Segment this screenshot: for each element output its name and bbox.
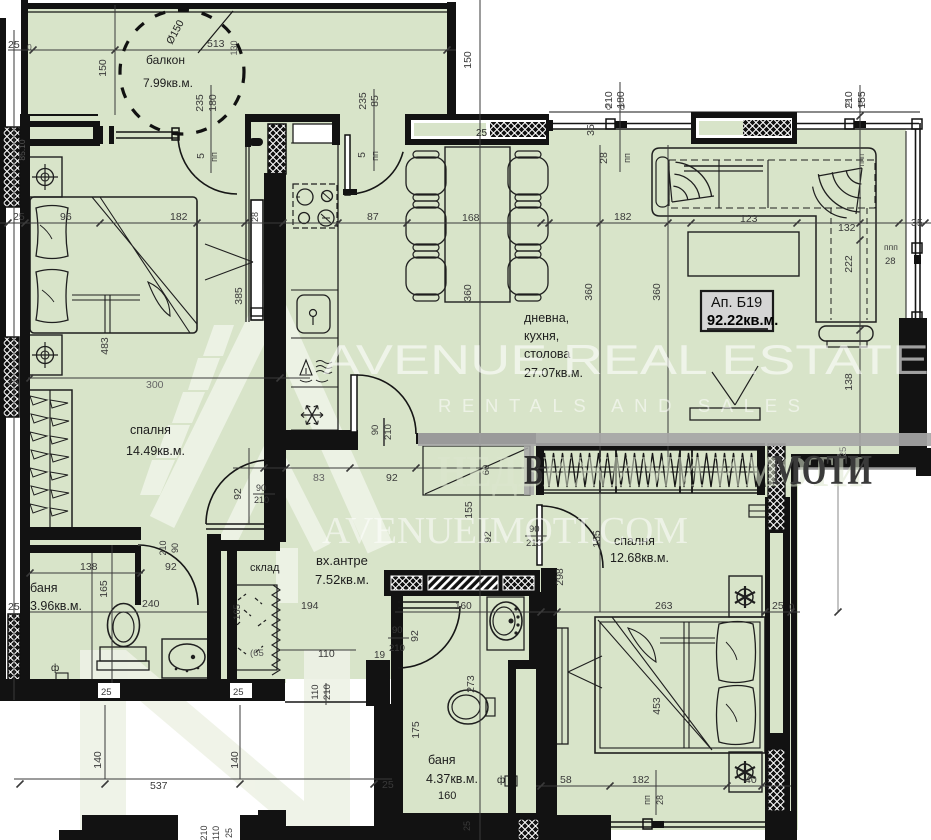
svg-text:123: 123 bbox=[740, 213, 758, 225]
svg-text:МОТИ: МОТИ bbox=[772, 448, 872, 494]
svg-text:25: 25 bbox=[382, 779, 394, 791]
svg-text:19: 19 bbox=[374, 650, 386, 661]
svg-text:92: 92 bbox=[409, 630, 421, 642]
svg-text:25: 25 bbox=[476, 128, 488, 139]
svg-text:385: 385 bbox=[233, 287, 245, 305]
svg-text:90: 90 bbox=[392, 625, 403, 636]
svg-text:AVENUEIMOTI.COM: AVENUEIMOTI.COM bbox=[322, 510, 688, 552]
svg-text:298: 298 bbox=[554, 568, 566, 586]
svg-text:210: 210 bbox=[843, 91, 855, 109]
svg-text:90: 90 bbox=[170, 543, 180, 553]
svg-text:0: 0 bbox=[620, 102, 625, 112]
svg-text:25: 25 bbox=[233, 687, 244, 698]
svg-text:92.22кв.м.: 92.22кв.м. bbox=[707, 313, 778, 329]
svg-text:182: 182 bbox=[632, 774, 650, 786]
svg-text:40: 40 bbox=[745, 774, 757, 786]
svg-text:25: 25 bbox=[8, 601, 20, 613]
svg-text:175: 175 bbox=[410, 721, 422, 739]
svg-text:балкон: балкон bbox=[146, 53, 185, 67]
svg-text:35: 35 bbox=[911, 217, 923, 229]
svg-text:165: 165 bbox=[232, 604, 243, 620]
svg-text:150: 150 bbox=[97, 59, 109, 77]
svg-text:25: 25 bbox=[224, 828, 234, 838]
svg-text:263: 263 bbox=[655, 600, 673, 612]
svg-text:210: 210 bbox=[158, 540, 168, 555]
svg-text:168: 168 bbox=[462, 212, 480, 224]
svg-text:300: 300 bbox=[146, 379, 164, 391]
svg-text:3.96кв.м.: 3.96кв.м. bbox=[30, 599, 82, 613]
svg-text:85.10: 85.10 bbox=[17, 139, 27, 161]
svg-text:25: 25 bbox=[462, 821, 472, 831]
svg-text:360: 360 bbox=[651, 283, 663, 301]
svg-text:AVENUE REAL ESTATE: AVENUE REAL ESTATE bbox=[323, 336, 929, 383]
svg-text:В: В bbox=[524, 448, 543, 494]
svg-text:96: 96 bbox=[60, 211, 72, 223]
svg-text:222: 222 bbox=[843, 255, 855, 273]
svg-text:дневна,: дневна, bbox=[524, 311, 569, 325]
svg-text:165: 165 bbox=[98, 580, 110, 598]
svg-text:235: 235 bbox=[357, 92, 369, 110]
svg-text:ппп: ппп bbox=[884, 242, 898, 252]
svg-text:25: 25 bbox=[13, 211, 25, 223]
svg-text:пп: пп bbox=[642, 795, 652, 805]
svg-text:5: 5 bbox=[195, 153, 207, 159]
svg-text:83: 83 bbox=[313, 472, 325, 484]
svg-text:5: 5 bbox=[356, 152, 368, 158]
svg-text:273: 273 bbox=[465, 675, 477, 693]
svg-text:360: 360 bbox=[462, 284, 474, 302]
svg-text:132: 132 bbox=[838, 222, 856, 234]
svg-text:360: 360 bbox=[583, 283, 595, 301]
svg-text:7.52кв.м.: 7.52кв.м. bbox=[315, 572, 369, 587]
svg-text:92: 92 bbox=[165, 561, 177, 573]
svg-text:ппп: ппп bbox=[857, 154, 866, 166]
svg-text:0: 0 bbox=[606, 102, 611, 112]
svg-text:140: 140 bbox=[229, 751, 241, 769]
svg-text:235: 235 bbox=[194, 94, 206, 112]
svg-text:87: 87 bbox=[367, 211, 379, 223]
svg-text:25: 25 bbox=[101, 687, 112, 698]
svg-text:(65: (65 bbox=[250, 648, 264, 659]
svg-text:180: 180 bbox=[207, 94, 219, 112]
svg-text:7.99кв.м.: 7.99кв.м. bbox=[143, 76, 193, 90]
svg-text:28: 28 bbox=[598, 152, 610, 164]
svg-text:баня: баня bbox=[428, 753, 456, 767]
svg-text:28: 28 bbox=[250, 212, 260, 222]
svg-text:RENTALS AND SALES: RENTALS AND SALES bbox=[438, 395, 800, 416]
svg-text:пп: пп bbox=[370, 151, 380, 161]
svg-text:210: 210 bbox=[389, 643, 405, 654]
svg-text:28: 28 bbox=[885, 256, 896, 267]
svg-text:92: 92 bbox=[386, 472, 398, 484]
svg-text:85: 85 bbox=[369, 95, 381, 107]
svg-text:4.37кв.м.: 4.37кв.м. bbox=[426, 772, 478, 786]
svg-text:210: 210 bbox=[199, 825, 209, 840]
svg-text:537: 537 bbox=[150, 780, 168, 792]
svg-text:25: 25 bbox=[8, 39, 20, 51]
svg-text:182: 182 bbox=[170, 211, 188, 223]
svg-text:110: 110 bbox=[310, 684, 321, 699]
svg-text:35: 35 bbox=[585, 124, 597, 136]
svg-text:25: 25 bbox=[7, 376, 19, 388]
svg-text:ф: ф bbox=[497, 774, 505, 786]
svg-text:138: 138 bbox=[80, 561, 98, 573]
svg-text:155: 155 bbox=[856, 91, 868, 109]
svg-text:0: 0 bbox=[27, 42, 32, 52]
svg-text:210: 210 bbox=[254, 495, 269, 505]
svg-text:90: 90 bbox=[370, 425, 381, 436]
svg-text:склад: склад bbox=[250, 562, 280, 574]
svg-text:0: 0 bbox=[789, 602, 794, 613]
svg-text:14.49кв.м.: 14.49кв.м. bbox=[126, 444, 185, 458]
svg-text:194: 194 bbox=[301, 600, 319, 612]
svg-text:пп: пп bbox=[622, 153, 632, 163]
svg-text:58: 58 bbox=[560, 774, 572, 786]
svg-text:453: 453 bbox=[651, 697, 663, 715]
svg-text:ф: ф bbox=[51, 662, 59, 674]
svg-text:110: 110 bbox=[211, 826, 221, 840]
svg-text:12.68кв.м.: 12.68кв.м. bbox=[610, 551, 669, 565]
svg-text:вх.антре: вх.антре bbox=[316, 553, 368, 568]
svg-text:210: 210 bbox=[322, 684, 333, 700]
svg-text:182: 182 bbox=[614, 211, 632, 223]
svg-text:90: 90 bbox=[256, 483, 266, 493]
svg-text:483: 483 bbox=[99, 337, 111, 355]
svg-text:240: 240 bbox=[142, 598, 160, 610]
svg-text:баня: баня bbox=[30, 581, 58, 595]
svg-text:пп: пп bbox=[209, 152, 219, 162]
svg-text:160: 160 bbox=[455, 601, 472, 612]
svg-text:160: 160 bbox=[438, 790, 456, 802]
svg-text:92: 92 bbox=[232, 488, 244, 500]
svg-text:150: 150 bbox=[462, 51, 474, 69]
svg-text:140: 140 bbox=[92, 751, 104, 769]
svg-text:спалня: спалня bbox=[130, 423, 171, 437]
svg-text:Ап. Б19: Ап. Б19 bbox=[711, 295, 762, 311]
svg-text:25: 25 bbox=[772, 600, 784, 612]
